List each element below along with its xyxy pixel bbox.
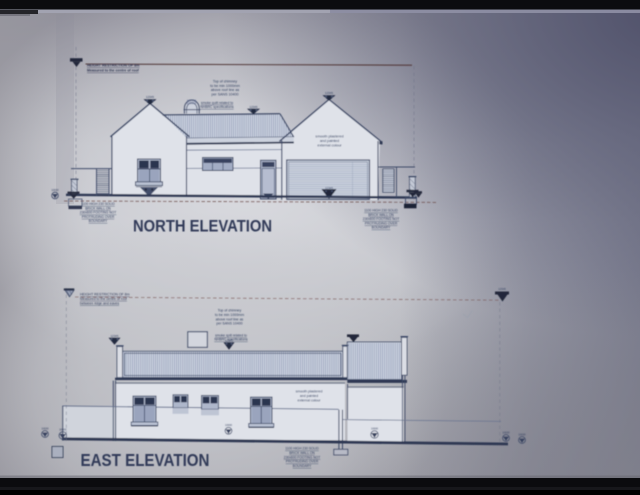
svg-text:12345: 12345: [498, 287, 506, 291]
svg-text:10000: 10000: [41, 426, 49, 430]
svg-text:10000: 10000: [502, 430, 510, 434]
svg-text:smooth plastered: smooth plastered: [296, 390, 323, 394]
svg-text:per SANS 10400: per SANS 10400: [212, 92, 239, 96]
svg-text:per SANS 10400: per SANS 10400: [216, 322, 242, 326]
svg-text:smooth plastered: smooth plastered: [315, 135, 343, 139]
svg-text:10000: 10000: [51, 188, 59, 192]
svg-text:HEIGHT RESTRICTION OF 8m: HEIGHT RESTRICTION OF 8m: [80, 293, 130, 297]
svg-text:HEIGHT RESTRICTION OF 8m: HEIGHT RESTRICTION OF 8m: [87, 64, 140, 68]
svg-text:1100 HIGH 230 SOLID: 1100 HIGH 230 SOLID: [285, 447, 319, 451]
svg-text:between ridge and eaves: between ridge and eaves: [80, 301, 119, 305]
svg-text:12345: 12345: [249, 105, 257, 109]
svg-text:230x600 FOOTING NOT: 230x600 FOOTING NOT: [284, 455, 320, 459]
svg-text:BOUNDARY: BOUNDARY: [89, 219, 108, 223]
svg-text:Top of chimney: Top of chimney: [218, 309, 242, 313]
svg-text:above roof line as: above roof line as: [216, 317, 244, 321]
svg-text:12345: 12345: [325, 91, 333, 95]
svg-text:BOUNDARY: BOUNDARY: [293, 464, 312, 468]
svg-text:BRICK WALL ON: BRICK WALL ON: [289, 451, 315, 455]
svg-text:10000: 10000: [371, 426, 379, 430]
svg-text:Measured to the centre of roof: Measured to the centre of roof: [87, 69, 140, 73]
svg-text:to be min 1000mm: to be min 1000mm: [215, 313, 244, 317]
svg-text:NHBRC specifications: NHBRC specifications: [214, 338, 248, 342]
svg-text:Measured to the centre of roof: Measured to the centre of roof: [80, 297, 127, 301]
svg-text:12345: 12345: [325, 186, 333, 190]
svg-text:10000: 10000: [59, 427, 67, 431]
svg-text:NHBRC specifications: NHBRC specifications: [200, 105, 234, 109]
svg-text:BOUNDARY: BOUNDARY: [372, 226, 391, 230]
svg-text:and painted: and painted: [320, 139, 339, 143]
svg-text:external colour: external colour: [298, 398, 322, 402]
svg-text:NORTH ELEVATION: NORTH ELEVATION: [133, 218, 272, 236]
svg-text:10000: 10000: [225, 423, 233, 427]
svg-text:12345: 12345: [111, 334, 119, 338]
svg-text:10000: 10000: [518, 432, 526, 436]
svg-text:PROTRUDING OVER: PROTRUDING OVER: [286, 460, 319, 464]
svg-text:12345: 12345: [146, 95, 154, 99]
svg-text:EAST ELEVATION: EAST ELEVATION: [81, 450, 210, 470]
svg-text:and painted: and painted: [300, 394, 318, 398]
svg-text:external colour: external colour: [317, 144, 342, 148]
